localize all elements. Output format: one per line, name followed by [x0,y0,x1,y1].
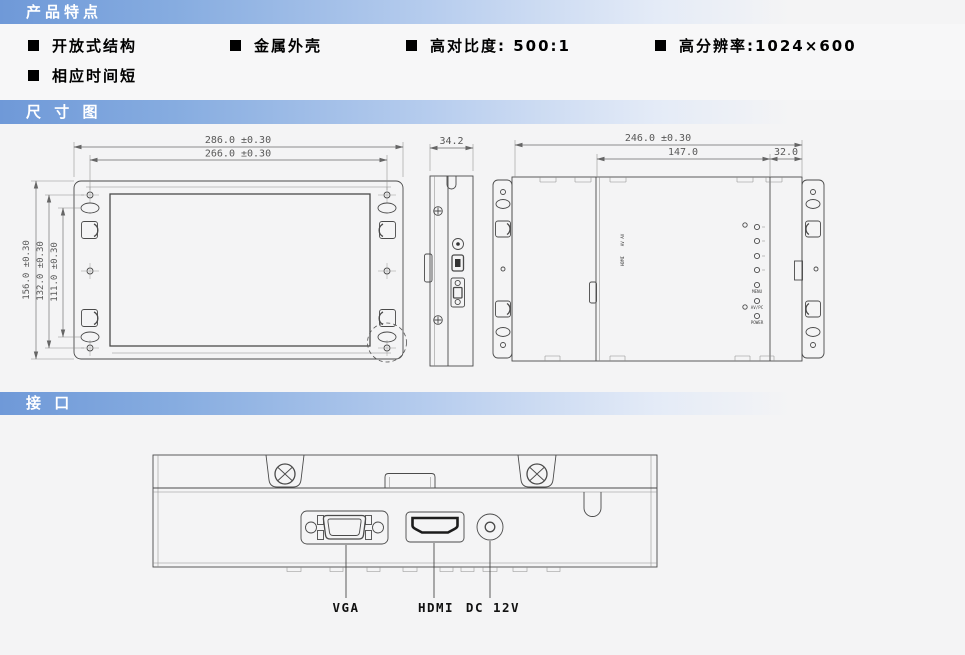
vga-connector [301,511,388,544]
bottom-view: VGA HDMI DC 12V [153,455,657,615]
svg-text:147.0: 147.0 [668,147,698,158]
interface-diagram: VGA HDMI DC 12V [0,430,965,655]
rear-left-tab [590,282,597,303]
svg-text:266.0 ±0.30: 266.0 ±0.30 [205,149,271,160]
feature-label: 金属外壳 [254,37,322,55]
screw-bracket [518,455,556,487]
mount-holes-left [81,187,99,356]
port-label-vga: VGA [332,600,359,615]
feature-label: 高分辨率:1024×600 [679,37,857,55]
bullet-square-icon [230,40,241,51]
handle-tab [385,474,435,489]
front-dim-height-holes: 132.0 ±0.30 [36,195,84,348]
port-label-hdmi: HDMI [418,600,454,615]
svg-text:132.0 ±0.30: 132.0 ±0.30 [36,241,46,301]
side-tab [425,254,433,282]
rear-buttons: MENU AV/PC POWER [743,223,765,325]
top-tabs [540,177,782,182]
rear-ear-left-holes [496,190,511,348]
dc-jack-side [453,239,464,250]
dimension-diagram: 286.0 ±0.30 266.0 ±0.30 156.0 ±0.30 132.… [0,124,965,392]
feature-item: 相应时间短 [28,67,137,85]
features-strip [0,24,965,100]
screw-cross-icon [530,468,544,481]
screw-icon [434,316,443,325]
feature-label: 相应时间短 [52,67,137,85]
section-title-interface: 接 口 [26,394,73,412]
feature-item: 高对比度: 500:1 [406,37,571,55]
side-view: 34.2 [425,136,474,366]
bottom-notches [287,567,560,572]
rear-dim-width-outer: 246.0 ±0.30 [515,133,802,177]
screw-cross-icon [278,468,292,481]
feature-label: 高对比度: 500:1 [430,37,571,55]
rear-body [512,177,802,361]
feature-item: 高分辨率:1024×600 [655,37,857,55]
svg-text:34.2: 34.2 [439,136,463,147]
port-label-dc12v: DC 12V [466,600,520,615]
right-slot [584,492,601,517]
bullet-square-icon [28,40,39,51]
front-dim-height-slots: 111.0 ±0.30 [50,208,80,337]
front-dim-height-outer: 156.0 ±0.30 [22,181,74,359]
svg-text:156.0 ±0.30: 156.0 ±0.30 [22,240,32,300]
feature-item: 开放式结构 [28,37,137,55]
svg-text:246.0 ±0.30: 246.0 ±0.30 [625,133,691,144]
rear-ear-right [802,180,824,358]
bullet-square-icon [28,70,39,81]
vga-port-side [451,278,465,307]
svg-text:111.0 ±0.30: 111.0 ±0.30 [50,242,60,302]
rear-dim-width-center: 147.0 [597,147,770,177]
rear-port-label-hdmi: HDMI [620,255,625,266]
section-bar-dimensions: 尺 寸 图 [0,100,965,124]
screw-bracket [266,455,304,487]
side-dim-depth: 34.2 [430,136,473,171]
hdmi-port-side [452,255,464,271]
section-bar-product-features: 产品特点 [0,0,965,24]
button-label-menu: MENU [752,289,763,294]
section-bar-interface: 接 口 [0,392,965,415]
button-label-power: POWER [751,320,764,325]
dc-jack [477,514,503,540]
button-label-avpc: AV/PC [751,305,764,310]
rear-ear-right-holes [806,190,821,348]
front-dim-width-holes: 266.0 ±0.30 [90,149,387,191]
front-view: 286.0 ±0.30 266.0 ±0.30 156.0 ±0.30 132.… [22,135,407,362]
svg-text:32.0: 32.0 [774,147,798,158]
bullet-square-icon [406,40,417,51]
svg-text:286.0 ±0.30: 286.0 ±0.30 [205,135,271,146]
feature-item: 金属外壳 [230,37,322,55]
rear-port-label-av: AV AV [620,233,625,246]
bullet-square-icon [655,40,666,51]
feature-label: 开放式结构 [52,37,137,55]
rear-view: MENU AV/PC POWER AV AV HDMI 246.0 ±0.30 … [493,133,824,361]
rear-dim-width-edge: 32.0 [770,147,802,159]
section-title-dimensions: 尺 寸 图 [26,103,101,121]
rear-right-handle [795,261,803,280]
screw-icon [434,207,443,216]
hdmi-connector [406,512,464,542]
bottom-tabs [545,356,774,361]
mount-holes-right [378,187,396,356]
screen-area [110,194,370,346]
section-title-features: 产品特点 [26,3,102,21]
